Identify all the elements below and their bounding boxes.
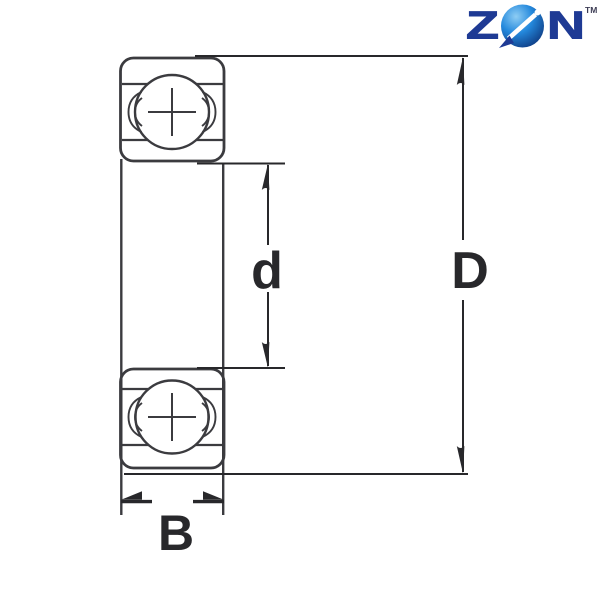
zen-logo: Z N TM [466,5,597,49]
bearing-cross-section-drawing: d D B Z N TM [0,0,600,600]
dimension-label-width-B: B [158,505,194,561]
dimension-label-bore-d: d [251,242,283,300]
bearing-section-bottom [121,369,225,468]
arrow-B-right-icon [203,491,224,500]
dimension-labels-group: d D B [158,242,489,561]
logo-letter-n: N [547,5,585,48]
bearing-outline-group [121,58,225,515]
logo-letter-z: Z [466,5,499,48]
dimension-label-outer-D: D [451,242,489,300]
arrow-B-left-icon [121,491,142,500]
bearing-section-top [121,58,225,161]
logo-trademark: TM [585,5,597,15]
bearing-diagram-page: d D B Z N TM [0,0,600,600]
globe-dot-icon [535,10,541,16]
